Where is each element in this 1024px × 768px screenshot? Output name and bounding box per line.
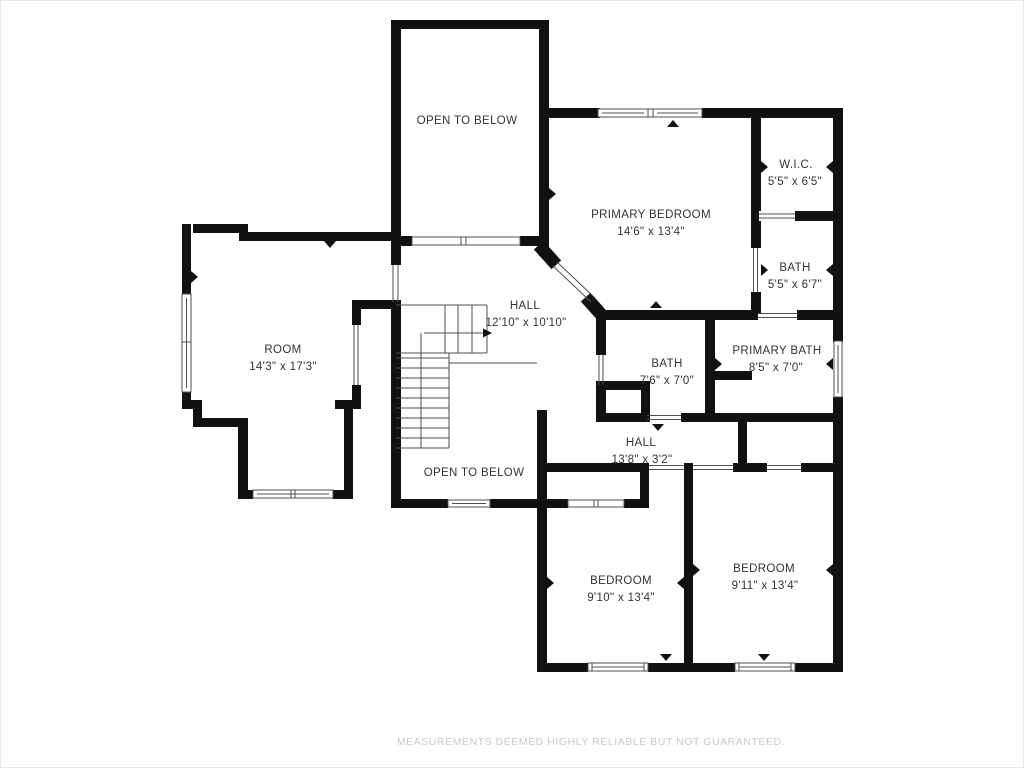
room-dims-bedroom-2: 9'11" x 13'4" (732, 580, 799, 592)
room-label-bath-small: BATH (779, 262, 810, 274)
window (598, 109, 702, 117)
balcony-railing (412, 237, 520, 245)
window (834, 341, 842, 397)
room-dims-primary-bath: 8'5" x 7'0" (749, 362, 803, 374)
room-label-room: ROOM (264, 344, 301, 356)
floor-plan-drawing: OPEN TO BELOW PRIMARY BEDROOM 14'6" x 13… (0, 0, 1024, 768)
window (588, 663, 648, 671)
room-label-open-below-top: OPEN TO BELOW (417, 115, 518, 127)
closet-doors (568, 500, 624, 507)
room-label-primary-bedroom: PRIMARY BEDROOM (591, 209, 711, 221)
room-dims-hall-main: 12'10" x 10'10" (485, 317, 566, 329)
room-label-bedroom-2: BEDROOM (733, 563, 795, 575)
room-label-wic: W.I.C. (779, 159, 812, 171)
window (253, 490, 333, 498)
room-dims-room: 14'3" x 17'3" (249, 361, 317, 373)
window (448, 500, 490, 507)
room-label-hall-lower: HALL (626, 437, 656, 449)
diagonal-wall-caps (543, 250, 598, 311)
room-label-primary-bath: PRIMARY BATH (732, 345, 821, 357)
window (182, 294, 191, 392)
disclaimer-text: MEASUREMENTS DEEMED HIGHLY RELIABLE BUT … (397, 736, 785, 748)
floor-plan-page: OPEN TO BELOW PRIMARY BEDROOM 14'6" x 13… (0, 0, 1024, 768)
room-label-hall-bath: BATH (651, 358, 682, 370)
room-dims-primary-bedroom: 14'6" x 13'4" (617, 226, 685, 238)
room-labels: OPEN TO BELOW PRIMARY BEDROOM 14'6" x 13… (249, 115, 822, 604)
room-dims-hall-bath: 7'6" x 7'0" (640, 375, 694, 387)
room-dims-hall-lower: 13'8" x 3'2" (612, 454, 673, 466)
room-label-hall-main: HALL (510, 300, 540, 312)
window (735, 663, 795, 671)
room-label-open-below-mid: OPEN TO BELOW (424, 467, 525, 479)
room-dims-wic: 5'5" x 6'5" (768, 176, 822, 188)
room-dims-bedroom-1: 9'10" x 13'4" (587, 592, 655, 604)
room-dims-bath-small: 5'5" x 6'7" (768, 279, 822, 291)
room-label-bedroom-1: BEDROOM (590, 575, 652, 587)
